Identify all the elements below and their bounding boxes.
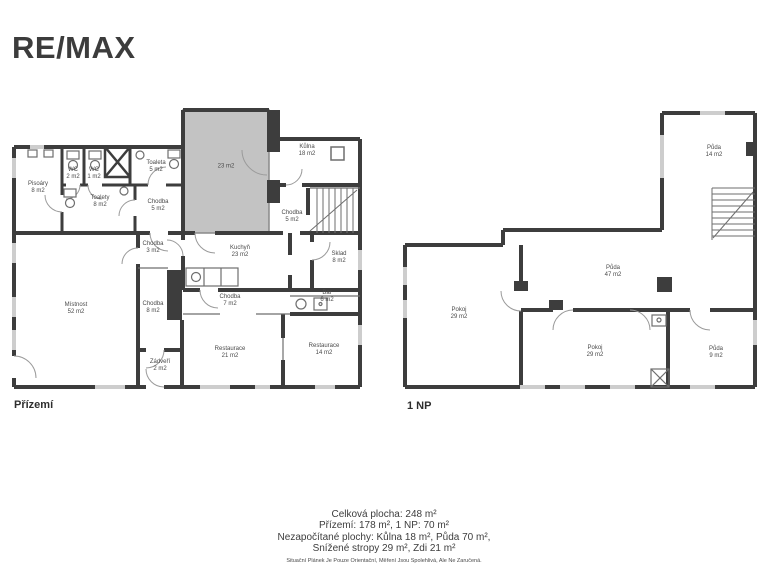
upper-floor-title: 1 NP	[407, 400, 431, 412]
upper-floor-plan	[405, 113, 755, 387]
ground-floor-plan	[14, 110, 360, 387]
summary-excluded-2: Snížené stropy 29 m², Zdi 21 m²	[0, 543, 768, 554]
upper-windows	[405, 113, 755, 387]
ground-floor-title: Přízemí	[14, 399, 53, 411]
upper-wall-blocks	[514, 142, 755, 310]
upper-walls	[405, 113, 755, 387]
summary-floor-areas: Přízemí: 178 m², 1 NP: 70 m²	[0, 520, 768, 531]
summary-total-area: Celková plocha: 248 m²	[0, 509, 768, 520]
summary-block: Celková plocha: 248 m² Přízemí: 178 m², …	[0, 509, 768, 565]
upper-fixtures	[652, 315, 666, 326]
floorplan-drawing	[0, 0, 768, 576]
reduced-ceiling-area	[183, 110, 269, 233]
chimney-icon	[331, 147, 344, 160]
upper-stairs-icon	[712, 188, 755, 240]
summary-excluded-1: Nezapočítané plochy: Kůlna 18 m², Půda 7…	[0, 532, 768, 543]
shaft-icon	[105, 147, 130, 177]
ground-stairs-icon	[310, 188, 357, 233]
summary-disclaimer: Situační Plánek Je Pouze Orientační, Měř…	[0, 558, 768, 565]
